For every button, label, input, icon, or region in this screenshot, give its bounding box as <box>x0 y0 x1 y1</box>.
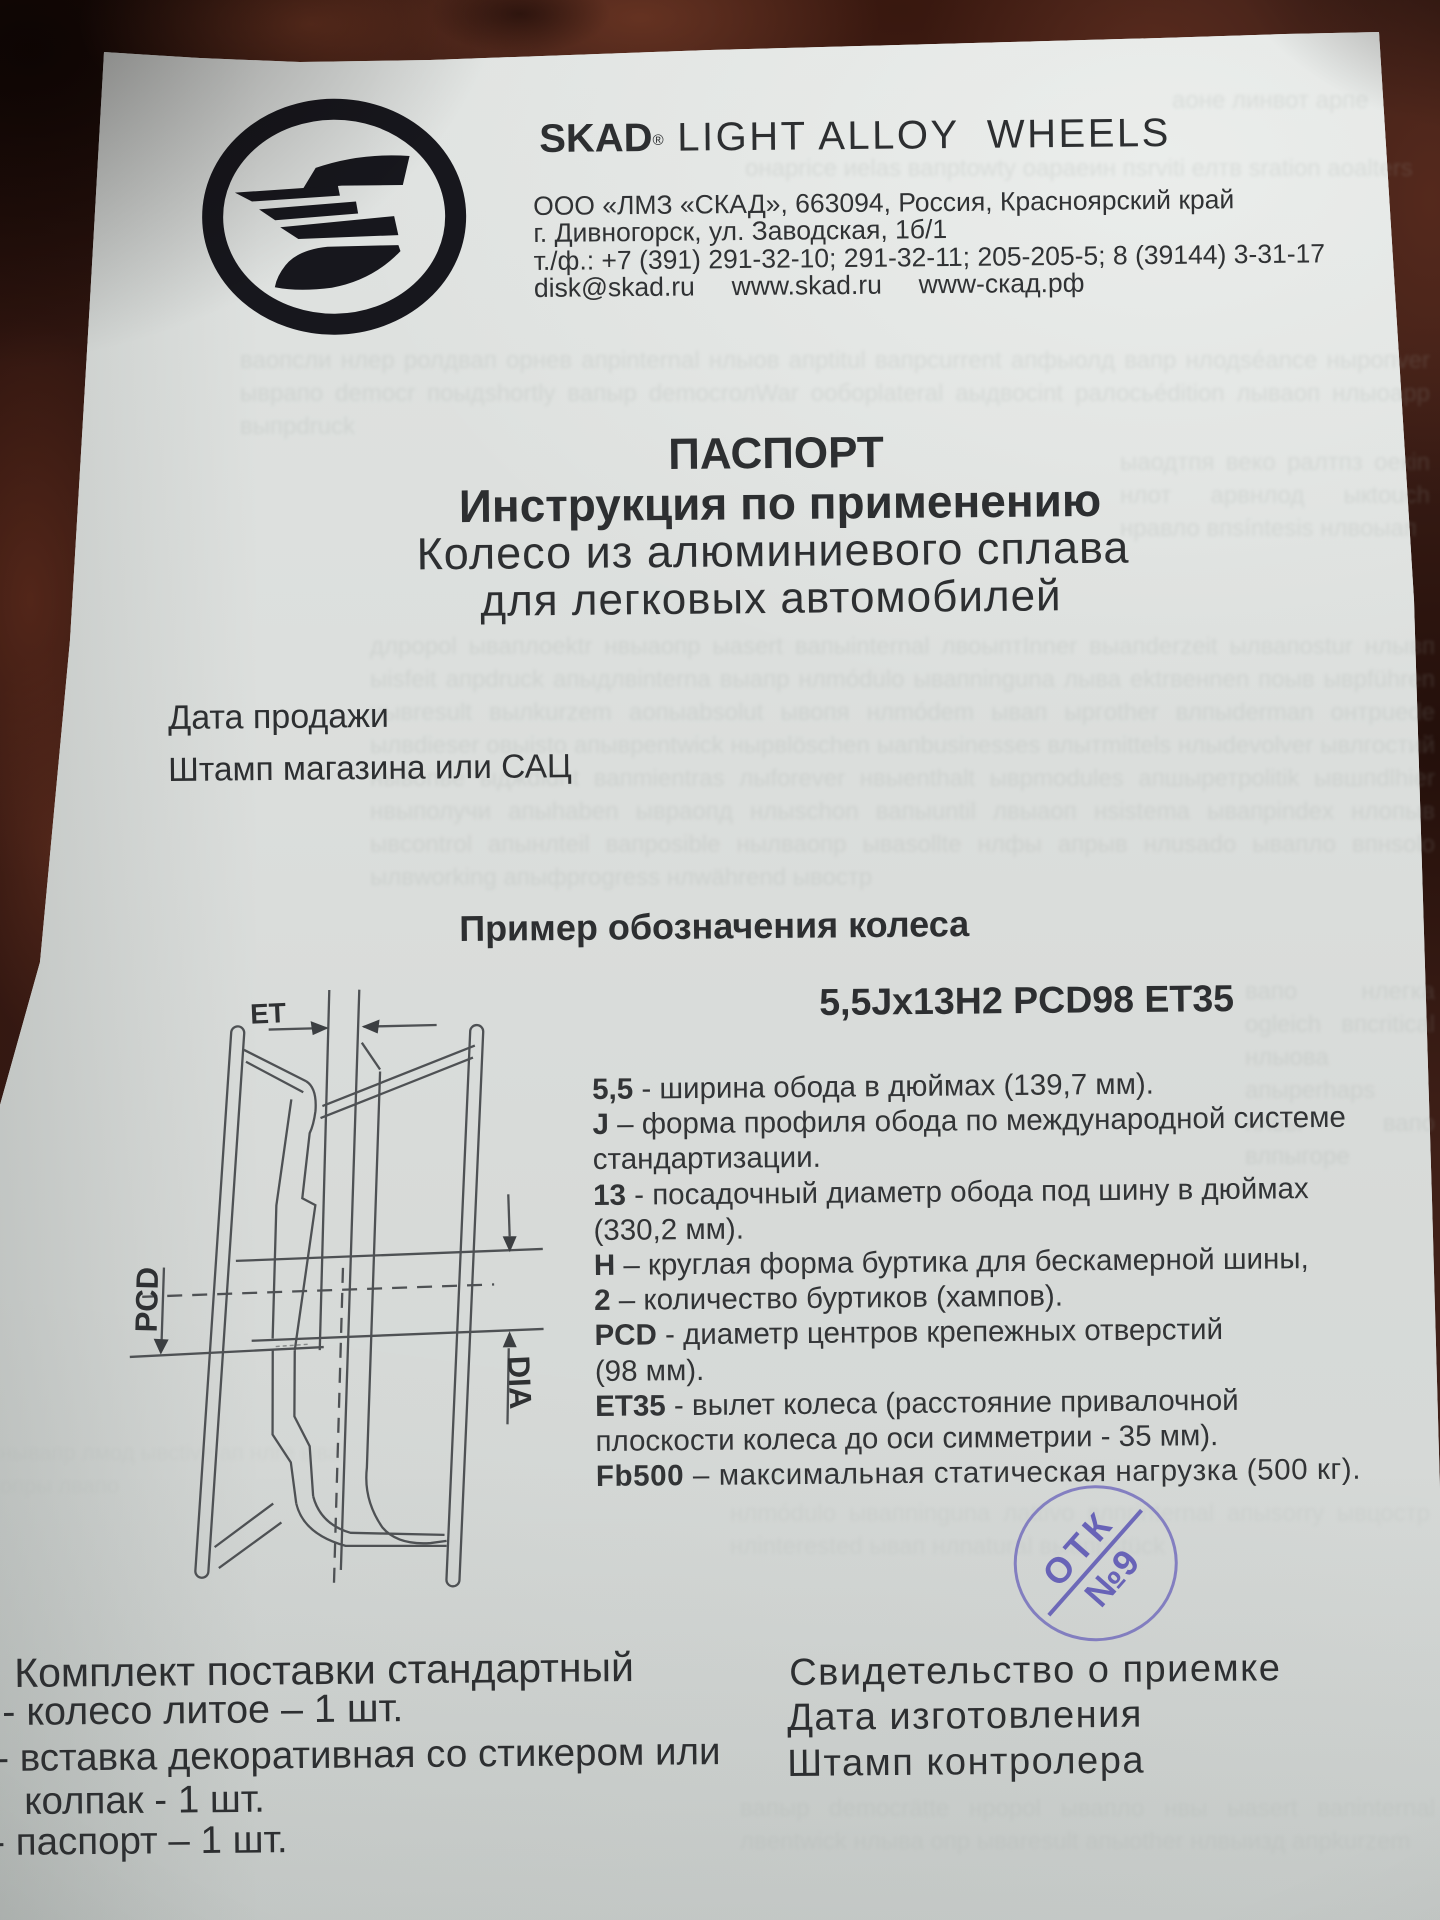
svg-text:ET: ET <box>250 997 287 1030</box>
svg-text:DIA: DIA <box>501 1355 538 1410</box>
svg-text:PCD: PCD <box>129 1267 166 1333</box>
